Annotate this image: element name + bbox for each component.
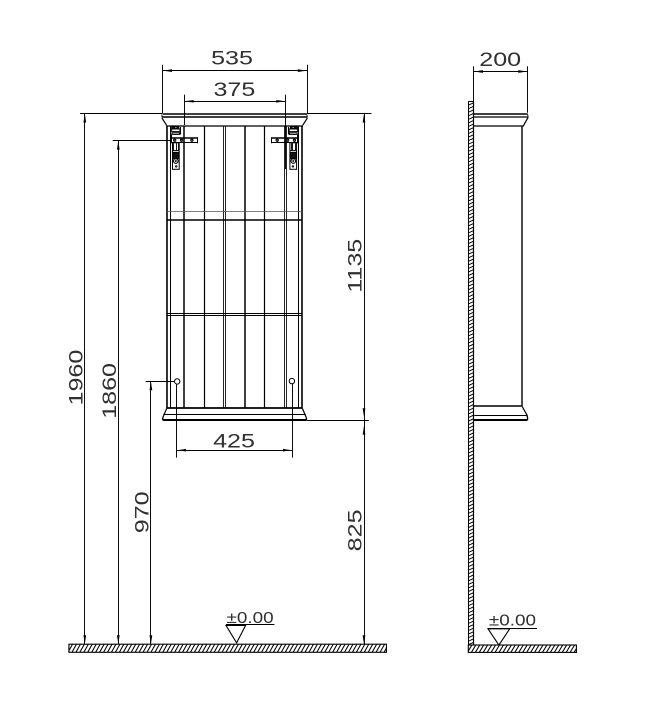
svg-text:1860: 1860 <box>99 363 121 419</box>
svg-text:1960: 1960 <box>65 350 87 406</box>
svg-text:425: 425 <box>213 430 255 452</box>
svg-text:±0.00: ±0.00 <box>489 611 536 629</box>
svg-text:±0.00: ±0.00 <box>227 609 274 627</box>
svg-text:825: 825 <box>344 509 366 551</box>
svg-text:375: 375 <box>213 79 255 101</box>
svg-text:970: 970 <box>131 491 153 533</box>
svg-text:1135: 1135 <box>344 239 366 293</box>
svg-text:200: 200 <box>479 49 521 71</box>
svg-text:535: 535 <box>211 47 253 69</box>
